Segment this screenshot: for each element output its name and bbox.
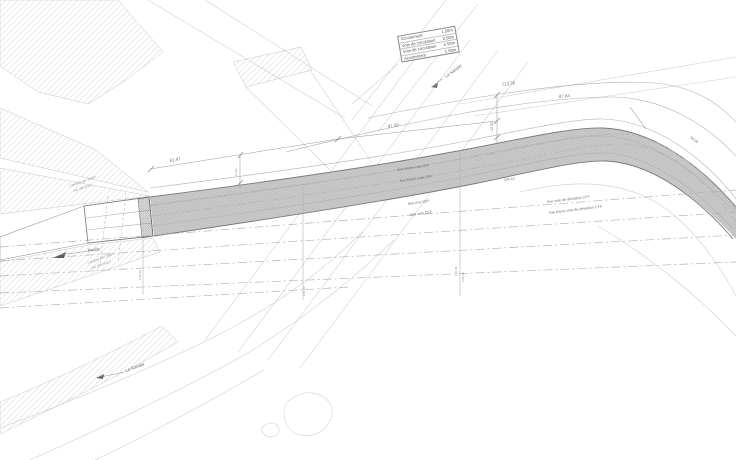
pond-outline	[261, 393, 332, 437]
dim-87-84: 87.84	[559, 93, 571, 99]
station-label-b: 102.30	[302, 286, 306, 296]
axe-mur-label: Axe mur CFF	[408, 199, 431, 206]
terrain-hatch-below-road	[0, 238, 160, 306]
dim-10-90: 10.90	[234, 168, 238, 176]
dim-306-63: 306.63	[504, 177, 515, 182]
corridor-band-hatch	[150, 128, 736, 239]
drawing-canvas: Axe future voie CFF Axe future voie CFF …	[0, 0, 736, 460]
dim-56-96: 56.96	[689, 136, 699, 145]
river-top-arrow	[434, 79, 442, 85]
terrain-hatch-parallelogram	[233, 47, 312, 87]
river-top-label: La Kander	[444, 63, 464, 79]
dim-97-39: 97.39	[387, 122, 399, 129]
station-label-a: 102.20	[138, 270, 142, 280]
dim-712-36: 712.36	[501, 80, 516, 87]
axe-voie-label: Axe voie CFF	[410, 210, 433, 217]
axe-voie-deviation-label: Axe voie de déviation CFF	[547, 195, 591, 204]
dim-12-50: 12.50	[490, 122, 494, 131]
table-row-value: 1.50m	[444, 47, 456, 55]
station-label-c: 102.36	[454, 266, 458, 276]
river-top-arrowhead	[431, 83, 438, 88]
dim-61-97: 61.97	[169, 156, 181, 163]
terrain-hatch-topleft	[0, 0, 163, 104]
axe-future-voie-deviation-label: Axe future voie de déviation CFF	[549, 204, 604, 215]
station-label-d: 102.38	[461, 272, 465, 282]
plan-drawing: Axe future voie CFF Axe future voie CFF …	[0, 0, 736, 460]
